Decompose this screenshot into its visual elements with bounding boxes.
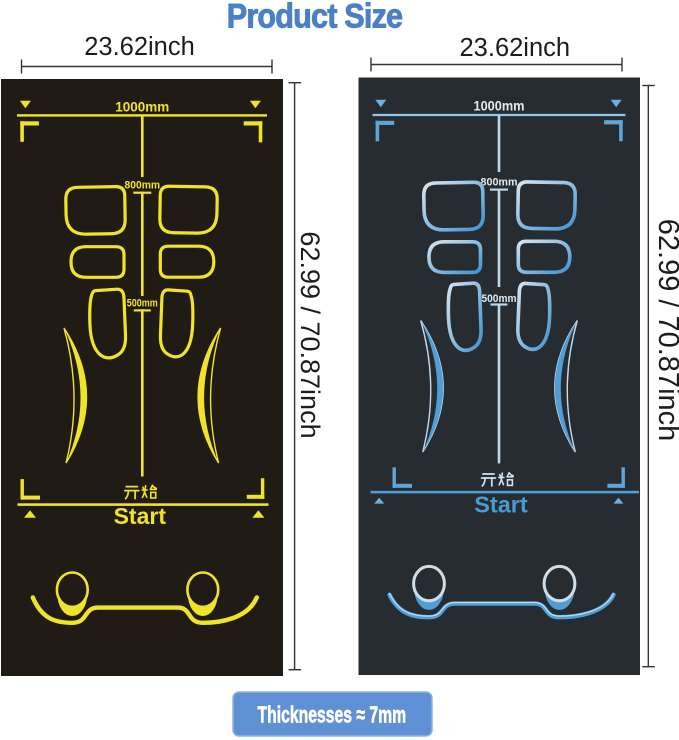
svg-text:1000mm: 1000mm [474,98,525,114]
svg-text:Start: Start [114,503,167,529]
svg-text:1000mm: 1000mm [115,99,169,115]
svg-text:Thicknesses ≈ 7mm: Thicknesses ≈ 7mm [257,703,406,729]
svg-text:500mm: 500mm [482,293,517,305]
svg-text:62.99 / 70.87inch: 62.99 / 70.87inch [652,219,679,442]
svg-text:62.99 / 70.87inch: 62.99 / 70.87inch [295,231,325,438]
svg-text:500mm: 500mm [127,297,158,309]
svg-text:23.62inch: 23.62inch [460,34,571,62]
svg-text:23.62inch: 23.62inch [84,33,195,61]
svg-text:Start: Start [474,491,528,517]
svg-text:800mm: 800mm [481,177,518,189]
svg-text:Product Size: Product Size [227,0,403,35]
svg-text:800mm: 800mm [125,180,161,192]
